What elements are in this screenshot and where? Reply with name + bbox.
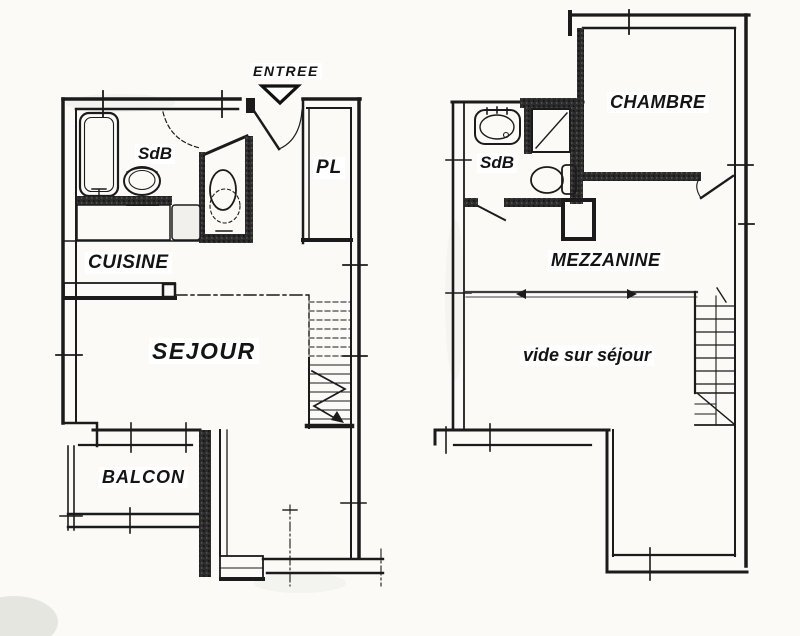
- label-mezzanine: MEZZANINE: [548, 250, 664, 271]
- label-sdb-floor2: SdB: [477, 153, 517, 173]
- toilet-icon-floor1: [199, 136, 253, 243]
- toilet-icon-floor2: [531, 165, 576, 194]
- kitchen-counter-icon: [64, 283, 175, 298]
- label-sdb-floor1: SdB: [135, 144, 175, 164]
- patio-door-threshold: [220, 556, 263, 580]
- label-balcon: BALCON: [99, 467, 188, 488]
- label-vide-sur-sejour: vide sur séjour: [520, 345, 654, 366]
- floorplan-page: ENTREE SdB PL CUISINE SEJOUR BALCON CHAM…: [0, 0, 800, 636]
- label-pl: PL: [313, 157, 345, 179]
- bathtub-icon: [80, 113, 118, 196]
- washbasin-icon-floor2: [475, 107, 520, 144]
- label-sejour: SEJOUR: [149, 338, 259, 364]
- entry-door: [254, 110, 302, 149]
- stairs-floor2-icon: [695, 288, 735, 425]
- label-chambre: CHAMBRE: [607, 92, 709, 113]
- label-cuisine: CUISINE: [85, 252, 172, 274]
- bedroom-door: [697, 176, 733, 198]
- mezzanine-edge: [466, 289, 697, 299]
- entry-arrow-icon: [262, 86, 298, 103]
- shower-icon: [524, 105, 583, 204]
- label-entree: ENTREE: [250, 63, 322, 79]
- balcony-walls: [60, 446, 200, 533]
- bathroom2-door: [478, 206, 505, 220]
- duct-closet: [563, 200, 594, 239]
- stairs-floor1-icon: [307, 295, 352, 428]
- washbasin-icon-floor1: [124, 167, 160, 206]
- bathroom-door-arc: [163, 112, 200, 148]
